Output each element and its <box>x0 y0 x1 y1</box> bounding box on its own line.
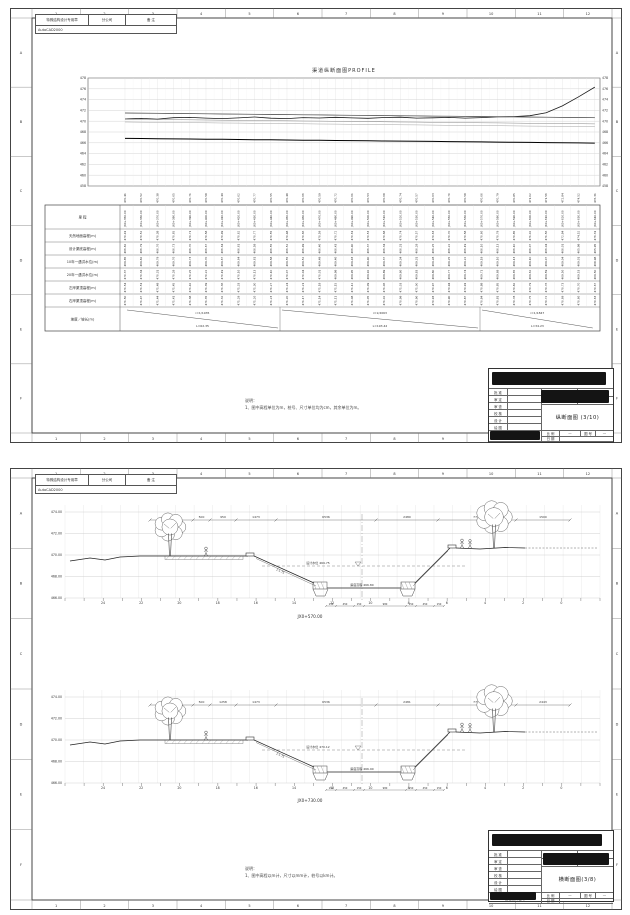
svg-text:C: C <box>616 652 619 656</box>
svg-text:468.00: 468.00 <box>51 760 62 764</box>
svg-text:B: B <box>20 120 23 124</box>
svg-text:A: A <box>20 51 23 55</box>
signoff-row: AutoCAD2000 <box>36 26 176 33</box>
svg-text:16: 16 <box>254 786 258 790</box>
svg-text:JX0+400.00: JX0+400.00 <box>204 210 208 228</box>
person-icon <box>468 540 472 549</box>
station-label: JX0+570.00 <box>297 614 323 619</box>
svg-text:469.55: 469.55 <box>285 256 289 266</box>
svg-text:470.41: 470.41 <box>123 193 127 203</box>
svg-text:470.79: 470.79 <box>496 230 500 240</box>
svg-text:471.23: 471.23 <box>269 295 273 305</box>
slope-row: i=1/1935L=62.35i=1/2063L=193.42i=1/1847L… <box>127 307 593 331</box>
svg-text:JX0+390.00: JX0+390.00 <box>188 210 192 228</box>
svg-text:4: 4 <box>484 601 486 605</box>
svg-text:470.97: 470.97 <box>431 282 435 292</box>
svg-text:2: 2 <box>522 786 524 790</box>
svg-text:469.89: 469.89 <box>382 269 386 279</box>
signoff-row: 特殊结构设计专用章 分公司 备 注 <box>36 15 176 26</box>
svg-text:474: 474 <box>80 98 86 102</box>
svg-text:470.67: 470.67 <box>593 282 597 292</box>
svg-text:469.58: 469.58 <box>269 256 273 266</box>
svg-text:470.88: 470.88 <box>479 282 483 292</box>
svg-text:设计水位 470.12: 设计水位 470.12 <box>306 744 330 749</box>
svg-text:12: 12 <box>330 601 334 605</box>
svg-text:470.41: 470.41 <box>123 230 127 240</box>
person-icon <box>468 724 472 733</box>
svg-text:坡度／坡长(m): 坡度／坡长(m) <box>71 316 95 321</box>
svg-text:JX0+580.00: JX0+580.00 <box>496 210 500 228</box>
svg-text:471.02: 471.02 <box>382 295 386 305</box>
svg-text:0: 0 <box>560 786 562 790</box>
svg-text:469.07: 469.07 <box>544 256 548 266</box>
svg-text:9: 9 <box>442 904 444 908</box>
svg-text:471.02: 471.02 <box>528 193 532 203</box>
svg-text:471.48: 471.48 <box>155 282 159 292</box>
svg-text:470.63: 470.63 <box>431 230 435 240</box>
svg-text:F: F <box>20 397 22 401</box>
svg-text:设计水位 469.75: 设计水位 469.75 <box>306 560 330 565</box>
svg-text:150: 150 <box>437 602 442 606</box>
svg-text:470.78: 470.78 <box>512 295 516 305</box>
svg-text:471.51: 471.51 <box>139 282 143 292</box>
svg-text:466: 466 <box>80 141 86 145</box>
svg-text:472.00: 472.00 <box>51 532 62 536</box>
date-value <box>559 899 613 905</box>
svg-text:7: 7 <box>345 12 347 16</box>
svg-text:JX0+550.00: JX0+550.00 <box>447 210 451 228</box>
approval-signature <box>507 858 541 865</box>
svg-text:470.22: 470.22 <box>204 269 208 279</box>
svg-text:470.77: 470.77 <box>253 193 257 203</box>
svg-text:8: 8 <box>393 472 395 476</box>
redaction-bar <box>490 431 540 440</box>
svg-text:466.25: 466.25 <box>431 243 435 253</box>
svg-text:470.79: 470.79 <box>528 282 532 292</box>
tree-icon <box>155 697 186 740</box>
svg-text:470.10: 470.10 <box>269 269 273 279</box>
svg-text:i=1/1847: i=1/1847 <box>530 311 544 315</box>
signoff-cell-branch: 分公司 <box>89 475 126 485</box>
svg-text:460: 460 <box>80 173 86 177</box>
svg-text:470.52: 470.52 <box>139 193 143 203</box>
date-label: 日 期 <box>541 437 559 443</box>
svg-text:466.52: 466.52 <box>285 243 289 253</box>
svg-text:E: E <box>20 327 22 331</box>
svg-text:6536: 6536 <box>322 700 330 704</box>
svg-text:469.95: 469.95 <box>350 269 354 279</box>
svg-text:466.46: 466.46 <box>317 243 321 253</box>
approval-signature <box>507 879 541 886</box>
crest-curb <box>246 737 254 740</box>
svg-text:4: 4 <box>484 786 486 790</box>
svg-text:10: 10 <box>368 786 372 790</box>
svg-text:466.76: 466.76 <box>155 243 159 253</box>
svg-text:JX0+560.00: JX0+560.00 <box>463 210 467 228</box>
signoff-table: 特殊结构设计专用章 分公司 备 注 AutoCAD2000 <box>35 474 177 494</box>
approval-label: 绘 图 <box>489 424 507 431</box>
svg-text:10年一遇洪水位(m): 10年一遇洪水位(m) <box>67 259 99 264</box>
svg-text:4: 4 <box>200 12 203 16</box>
svg-text:469.13: 469.13 <box>512 256 516 266</box>
svg-text:470.62: 470.62 <box>236 230 240 240</box>
signoff-table: 特殊结构设计专用章 分公司 备 注 AutoCAD2000 <box>35 14 177 34</box>
svg-text:471.33: 471.33 <box>236 282 240 292</box>
svg-text:469.28: 469.28 <box>431 256 435 266</box>
svg-text:466.00: 466.00 <box>51 596 62 600</box>
svg-text:470.71: 470.71 <box>188 193 192 203</box>
svg-text:470.65: 470.65 <box>172 193 176 203</box>
svg-text:470.66: 470.66 <box>479 230 483 240</box>
svg-text:14: 14 <box>292 601 296 605</box>
svg-text:9: 9 <box>442 12 444 16</box>
svg-text:466.16: 466.16 <box>479 243 483 253</box>
approval-signature <box>507 389 541 396</box>
svg-text:F: F <box>616 397 618 401</box>
station-label: JX0+730.00 <box>297 798 323 803</box>
svg-text:471.09: 471.09 <box>366 282 370 292</box>
svg-text:6536: 6536 <box>322 515 330 519</box>
note-body: 1、图中高程单位为m，桩号、尺寸单位均为cm，其余单位为m。 <box>245 405 361 412</box>
svg-text:469.50: 469.50 <box>593 269 597 279</box>
svg-text:469.01: 469.01 <box>577 256 581 266</box>
svg-text:0: 0 <box>560 601 562 605</box>
svg-text:470.63: 470.63 <box>593 295 597 305</box>
signoff-cell-stamp: 特殊结构设计专用章 <box>36 475 89 485</box>
svg-text:471.44: 471.44 <box>155 295 159 305</box>
drawing-title: 横断面图(3/8) <box>541 867 613 893</box>
svg-text:470.48: 470.48 <box>285 193 289 203</box>
svg-text:L=193.42: L=193.42 <box>373 324 388 328</box>
svg-text:471.12: 471.12 <box>350 282 354 292</box>
svg-text:466.01: 466.01 <box>560 243 564 253</box>
svg-text:设计渠底高程(m): 设计渠底高程(m) <box>69 246 97 251</box>
svg-text:471.56: 471.56 <box>544 193 548 203</box>
svg-text:466.07: 466.07 <box>528 243 532 253</box>
svg-text:L=34.23: L=34.23 <box>531 324 544 328</box>
svg-text:474.00: 474.00 <box>51 695 62 699</box>
svg-text:6: 6 <box>297 472 299 476</box>
svg-text:6: 6 <box>297 12 299 16</box>
svg-text:24: 24 <box>101 786 105 790</box>
svg-text:470.94: 470.94 <box>447 282 451 292</box>
svg-text:18: 18 <box>216 601 220 605</box>
svg-text:471.39: 471.39 <box>204 282 208 292</box>
sheet-profile: 112233445566778899101011111212AABBCCDDEE… <box>10 8 622 443</box>
svg-text:474.52: 474.52 <box>577 193 581 203</box>
svg-text:12: 12 <box>330 786 334 790</box>
svg-text:469.76: 469.76 <box>172 256 176 266</box>
svg-text:8: 8 <box>408 601 410 605</box>
svg-text:8: 8 <box>393 12 395 16</box>
svg-text:471.20: 471.20 <box>285 295 289 305</box>
svg-text:471.14: 471.14 <box>317 295 321 305</box>
svg-text:466.31: 466.31 <box>398 243 402 253</box>
approval-label: 批 准 <box>489 389 507 396</box>
svg-text:右岸渠顶高程(m): 右岸渠顶高程(m) <box>69 298 97 303</box>
svg-text:472: 472 <box>80 109 86 113</box>
svg-text:474.52: 474.52 <box>577 230 581 240</box>
svg-text:471.30: 471.30 <box>253 282 257 292</box>
date-value <box>559 437 613 443</box>
svg-text:JX0+350.00: JX0+350.00 <box>123 210 127 228</box>
svg-text:470.00: 470.00 <box>51 553 62 557</box>
svg-text:470.72: 470.72 <box>334 193 338 203</box>
svg-text:469.65: 469.65 <box>512 269 516 279</box>
svg-text:470.70: 470.70 <box>577 282 581 292</box>
svg-text:466.67: 466.67 <box>204 243 208 253</box>
svg-text:D: D <box>616 722 619 726</box>
svg-text:471.32: 471.32 <box>220 295 224 305</box>
svg-text:458: 458 <box>80 184 86 188</box>
svg-text:6: 6 <box>297 904 299 908</box>
svg-text:11: 11 <box>537 904 541 908</box>
svg-text:470.85: 470.85 <box>512 193 516 203</box>
svg-text:470.65: 470.65 <box>172 230 176 240</box>
offset-ruler: 242220181614121086420 <box>65 598 600 605</box>
svg-text:JX0+630.00: JX0+630.00 <box>577 210 581 228</box>
svg-text:466.19: 466.19 <box>463 243 467 253</box>
approval-label: 设 计 <box>489 417 507 424</box>
svg-text:466.28: 466.28 <box>415 243 419 253</box>
svg-text:471.03: 471.03 <box>398 282 402 292</box>
svg-text:469.86: 469.86 <box>398 269 402 279</box>
svg-text:JX0+450.00: JX0+450.00 <box>285 210 289 228</box>
svg-text:470.68: 470.68 <box>382 230 386 240</box>
approval-label: 批 准 <box>489 851 507 858</box>
svg-text:i=1/2063: i=1/2063 <box>373 311 387 315</box>
signoff-cell-branch: 分公司 <box>89 15 126 25</box>
svg-text:470.53: 470.53 <box>366 193 370 203</box>
approval-signature <box>507 403 541 410</box>
svg-text:471.56: 471.56 <box>544 230 548 240</box>
svg-text:470.99: 470.99 <box>398 295 402 305</box>
approval-label: 设 计 <box>489 879 507 886</box>
svg-text:469.92: 469.92 <box>366 269 370 279</box>
svg-text:471.27: 471.27 <box>269 282 273 292</box>
svg-text:470.66: 470.66 <box>301 230 305 240</box>
svg-text:469.61: 469.61 <box>253 256 257 266</box>
svg-text:470.70: 470.70 <box>447 193 451 203</box>
svg-text:F: F <box>20 863 22 867</box>
svg-text:B: B <box>616 120 619 124</box>
title-block: 批 准审 定审 查校 核设 计绘 图专 业设 计阶 段技 施纵断面图 (3/10… <box>488 368 614 443</box>
svg-text:8: 8 <box>393 904 395 908</box>
ground-line <box>456 548 525 550</box>
svg-text:462: 462 <box>80 163 86 167</box>
svg-text:470.55: 470.55 <box>269 230 273 240</box>
profile-chart-title: 渠道纵断面图PROFILE <box>244 67 444 74</box>
svg-text:22: 22 <box>139 601 143 605</box>
svg-text:470.25: 470.25 <box>188 269 192 279</box>
svg-text:469.34: 469.34 <box>398 256 402 266</box>
svg-text:471.45: 471.45 <box>172 282 176 292</box>
svg-text:左岸渠顶高程(m): 左岸渠顶高程(m) <box>69 285 97 290</box>
svg-text:469.46: 469.46 <box>334 256 338 266</box>
svg-text:471.06: 471.06 <box>382 282 386 292</box>
svg-text:1473: 1473 <box>252 700 260 704</box>
svg-text:7: 7 <box>345 472 347 476</box>
approval-label: 校 核 <box>489 872 507 879</box>
svg-text:18: 18 <box>216 786 220 790</box>
svg-text:465.95: 465.95 <box>593 243 597 253</box>
svg-text:JX0+520.00: JX0+520.00 <box>398 210 402 228</box>
foot-dimension-string: 150450150980150450150 <box>325 786 445 791</box>
svg-text:470.82: 470.82 <box>512 282 516 292</box>
svg-text:470.85: 470.85 <box>496 282 500 292</box>
svg-text:470.66: 470.66 <box>577 295 581 305</box>
svg-text:468.00: 468.00 <box>51 575 62 579</box>
svg-text:470.13: 470.13 <box>253 269 257 279</box>
svg-text:469.73: 469.73 <box>188 256 192 266</box>
svg-text:471.15: 471.15 <box>334 282 338 292</box>
svg-text:470.07: 470.07 <box>285 269 289 279</box>
svg-text:466.40: 466.40 <box>350 243 354 253</box>
signoff-cell-software: AutoCAD2000 <box>38 488 63 492</box>
svg-text:2443: 2443 <box>539 700 547 704</box>
svg-text:466.22: 466.22 <box>447 243 451 253</box>
svg-text:469.16: 469.16 <box>496 256 500 266</box>
svg-text:D: D <box>616 258 619 262</box>
svg-text:469.70: 469.70 <box>204 256 208 266</box>
svg-text:469.31: 469.31 <box>415 256 419 266</box>
cross-section-1: 474.00472.00470.00468.00466.00设计水位 469.7… <box>51 501 600 619</box>
svg-text:450: 450 <box>343 786 348 790</box>
svg-text:950: 950 <box>220 515 226 519</box>
svg-text:JX0+540.00: JX0+540.00 <box>431 210 435 228</box>
svg-text:464: 464 <box>80 152 86 156</box>
svg-text:150: 150 <box>357 786 362 790</box>
svg-text:6: 6 <box>446 601 448 605</box>
svg-text:470.70: 470.70 <box>447 230 451 240</box>
svg-text:1: 1 <box>55 904 57 908</box>
svg-text:B: B <box>20 582 23 586</box>
svg-text:471.47: 471.47 <box>139 295 143 305</box>
svg-text:470.91: 470.91 <box>463 282 467 292</box>
svg-text:L=62.35: L=62.35 <box>196 324 209 328</box>
svg-text:471.00: 471.00 <box>415 282 419 292</box>
tree-icon <box>477 501 513 548</box>
svg-text:466.37: 466.37 <box>366 243 370 253</box>
svg-text:11: 11 <box>537 472 541 476</box>
date-label: 日 期 <box>541 899 559 905</box>
approval-signature <box>507 865 541 872</box>
svg-text:1500: 1500 <box>539 515 547 519</box>
svg-text:470.01: 470.01 <box>317 269 321 279</box>
svg-text:470.93: 470.93 <box>431 295 435 305</box>
foot-dimension-string: 150450150980150450150 <box>325 602 445 607</box>
svg-text:470.38: 470.38 <box>155 230 159 240</box>
svg-text:469.98: 469.98 <box>334 269 338 279</box>
svg-text:JX0+610.00: JX0+610.00 <box>544 210 548 228</box>
person-icon <box>204 547 208 556</box>
svg-text:469.49: 469.49 <box>317 256 321 266</box>
svg-text:471.11: 471.11 <box>334 295 338 305</box>
ground-line <box>456 732 525 734</box>
svg-text:470.58: 470.58 <box>204 193 208 203</box>
svg-text:470.16: 470.16 <box>236 269 240 279</box>
svg-text:470.79: 470.79 <box>496 193 500 203</box>
svg-text:i=1/1935: i=1/1935 <box>196 311 210 315</box>
svg-text:470.58: 470.58 <box>204 230 208 240</box>
svg-text:E: E <box>616 793 618 797</box>
svg-text:JX0+410.00: JX0+410.00 <box>220 210 224 228</box>
svg-text:469.71: 469.71 <box>479 269 483 279</box>
offset-ruler: 242220181614121086420 <box>65 783 600 790</box>
svg-text:20: 20 <box>177 601 181 605</box>
svg-text:471.21: 471.21 <box>301 282 305 292</box>
svg-text:469.56: 469.56 <box>560 269 564 279</box>
svg-text:里 程: 里 程 <box>78 214 87 219</box>
svg-text:469.64: 469.64 <box>236 256 240 266</box>
svg-text:465.98: 465.98 <box>577 243 581 253</box>
svg-text:469.67: 469.67 <box>220 256 224 266</box>
note-title: 说明： <box>245 866 337 873</box>
svg-text:476.31: 476.31 <box>593 193 597 203</box>
svg-text:470.72: 470.72 <box>334 230 338 240</box>
svg-text:9: 9 <box>442 472 444 476</box>
svg-text:JX0+640.00: JX0+640.00 <box>593 210 597 228</box>
tree-icon <box>155 513 186 556</box>
svg-text:471.08: 471.08 <box>350 295 354 305</box>
person-icon <box>460 723 464 732</box>
page-canvas: 112233445566778899101011111212AABBCCDDEE… <box>0 0 630 915</box>
svg-text:2481: 2481 <box>403 700 411 704</box>
approval-label: 审 定 <box>489 858 507 865</box>
svg-text:22: 22 <box>139 786 143 790</box>
person-icon <box>460 539 464 548</box>
approval-label: 校 核 <box>489 410 507 417</box>
svg-text:470.58: 470.58 <box>463 230 467 240</box>
approval-label: 审 定 <box>489 396 507 403</box>
svg-text:468: 468 <box>80 130 86 134</box>
svg-text:470.84: 470.84 <box>479 295 483 305</box>
svg-text:C: C <box>20 189 23 193</box>
svg-text:470.72: 470.72 <box>544 295 548 305</box>
svg-text:5: 5 <box>248 904 250 908</box>
svg-text:JX0+590.00: JX0+590.00 <box>512 210 516 228</box>
signoff-row: AutoCAD2000 <box>36 486 176 493</box>
svg-text:466.04: 466.04 <box>544 243 548 253</box>
sheet-cross-sections: 112233445566778899101011111212AABBCCDDEE… <box>10 468 622 910</box>
svg-text:469.59: 469.59 <box>544 269 548 279</box>
svg-text:470.61: 470.61 <box>350 230 354 240</box>
svg-text:500: 500 <box>199 700 205 704</box>
svg-text:980: 980 <box>383 602 388 606</box>
svg-text:470.00: 470.00 <box>51 738 62 742</box>
svg-text:469.85: 469.85 <box>123 256 127 266</box>
svg-text:JX0+570.00: JX0+570.00 <box>479 210 483 228</box>
svg-text:470.49: 470.49 <box>220 193 224 203</box>
svg-text:6: 6 <box>297 437 299 441</box>
svg-text:468.98: 468.98 <box>593 256 597 266</box>
svg-text:D: D <box>20 722 23 726</box>
svg-text:JX0+370.00: JX0+370.00 <box>155 210 159 228</box>
svg-text:471.41: 471.41 <box>172 295 176 305</box>
svg-text:JX0+420.00: JX0+420.00 <box>236 210 240 228</box>
svg-text:466.43: 466.43 <box>334 243 338 253</box>
svg-text:3: 3 <box>152 904 154 908</box>
svg-text:466.10: 466.10 <box>512 243 516 253</box>
svg-text:469.10: 469.10 <box>528 256 532 266</box>
svg-text:4: 4 <box>200 472 203 476</box>
svg-text:E: E <box>616 327 618 331</box>
svg-text:471.17: 471.17 <box>301 295 305 305</box>
svg-text:12: 12 <box>586 472 590 476</box>
svg-text:466.58: 466.58 <box>253 243 257 253</box>
svg-text:470.75: 470.75 <box>528 295 532 305</box>
svg-text:980: 980 <box>383 786 388 790</box>
